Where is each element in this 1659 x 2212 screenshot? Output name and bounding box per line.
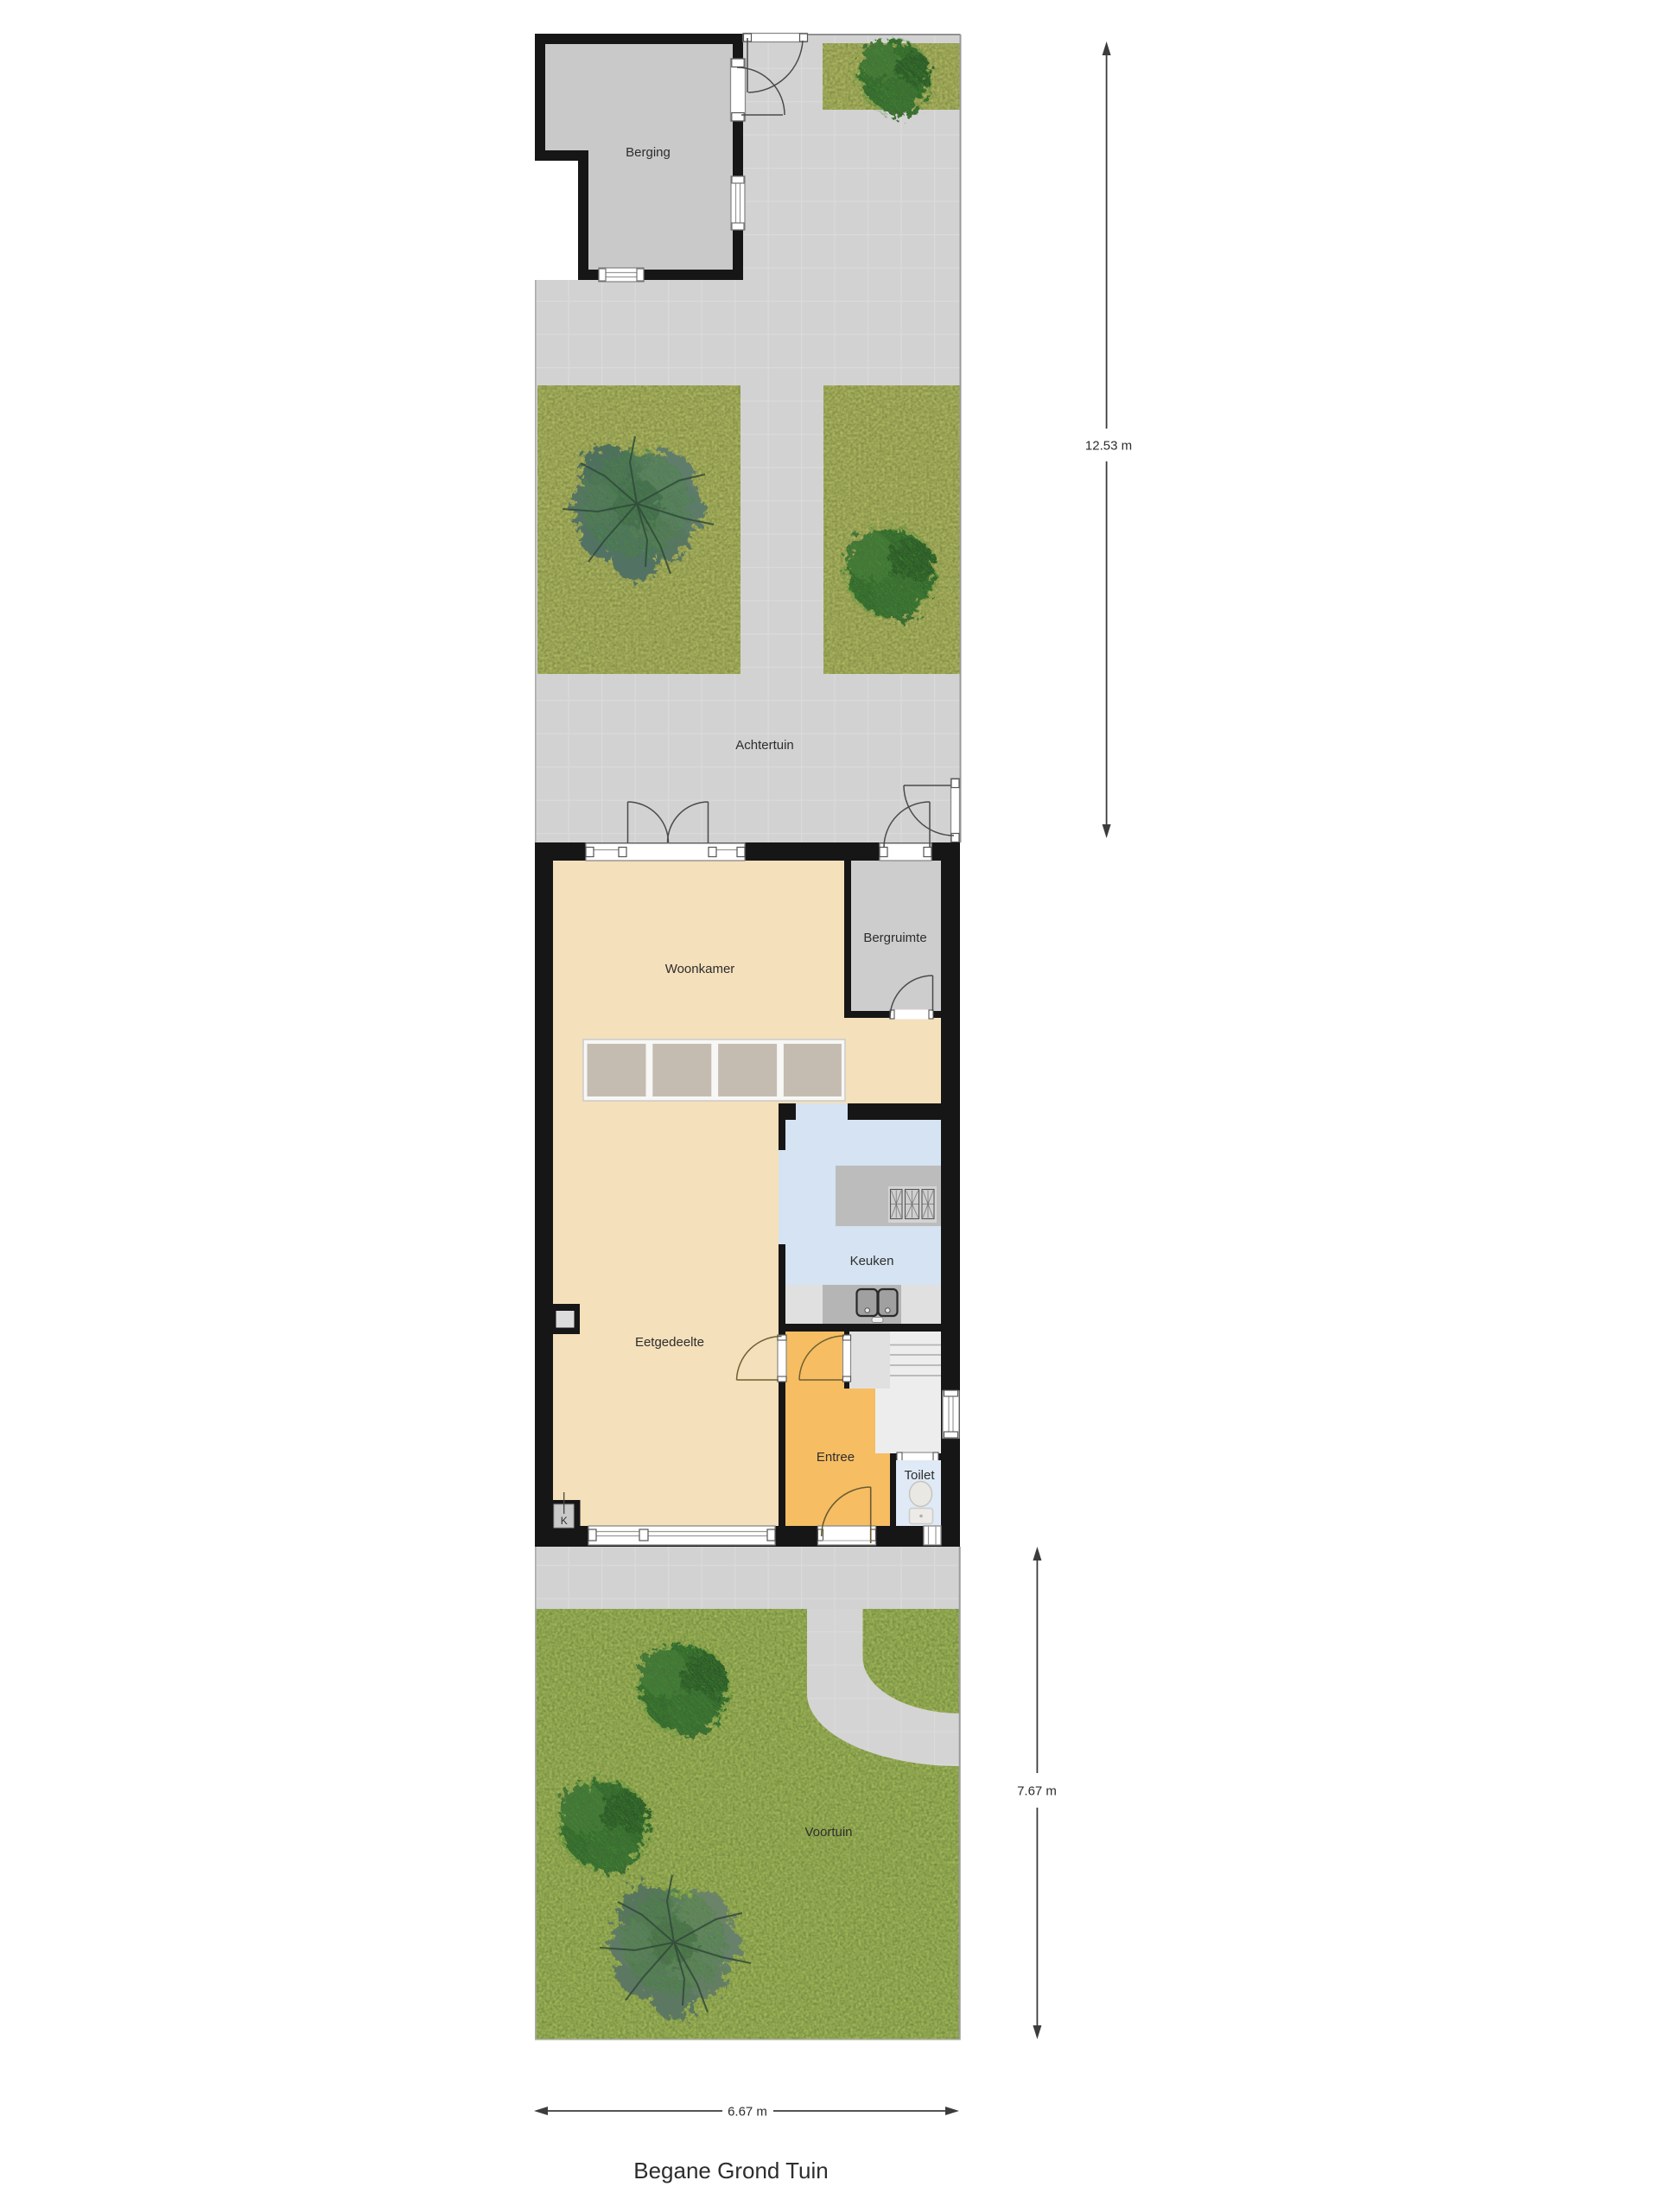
- svg-text:Bergruimte: Bergruimte: [863, 931, 926, 945]
- svg-text:Achtertuin: Achtertuin: [735, 738, 794, 753]
- svg-text:Toilet: Toilet: [904, 1468, 935, 1483]
- svg-text:7.67 m: 7.67 m: [1017, 1784, 1057, 1799]
- svg-text:Keuken: Keuken: [850, 1254, 894, 1268]
- svg-text:12.53 m: 12.53 m: [1085, 439, 1132, 454]
- svg-text:Entree: Entree: [817, 1450, 855, 1465]
- svg-text:Voortuin: Voortuin: [804, 1825, 852, 1840]
- svg-text:Eetgedeelte: Eetgedeelte: [635, 1335, 704, 1350]
- svg-text:Begane Grond Tuin: Begane Grond Tuin: [633, 2158, 829, 2183]
- svg-text:K: K: [561, 1515, 568, 1527]
- svg-text:Berging: Berging: [626, 145, 671, 160]
- svg-text:6.67 m: 6.67 m: [728, 2105, 767, 2120]
- svg-text:Woonkamer: Woonkamer: [665, 962, 735, 976]
